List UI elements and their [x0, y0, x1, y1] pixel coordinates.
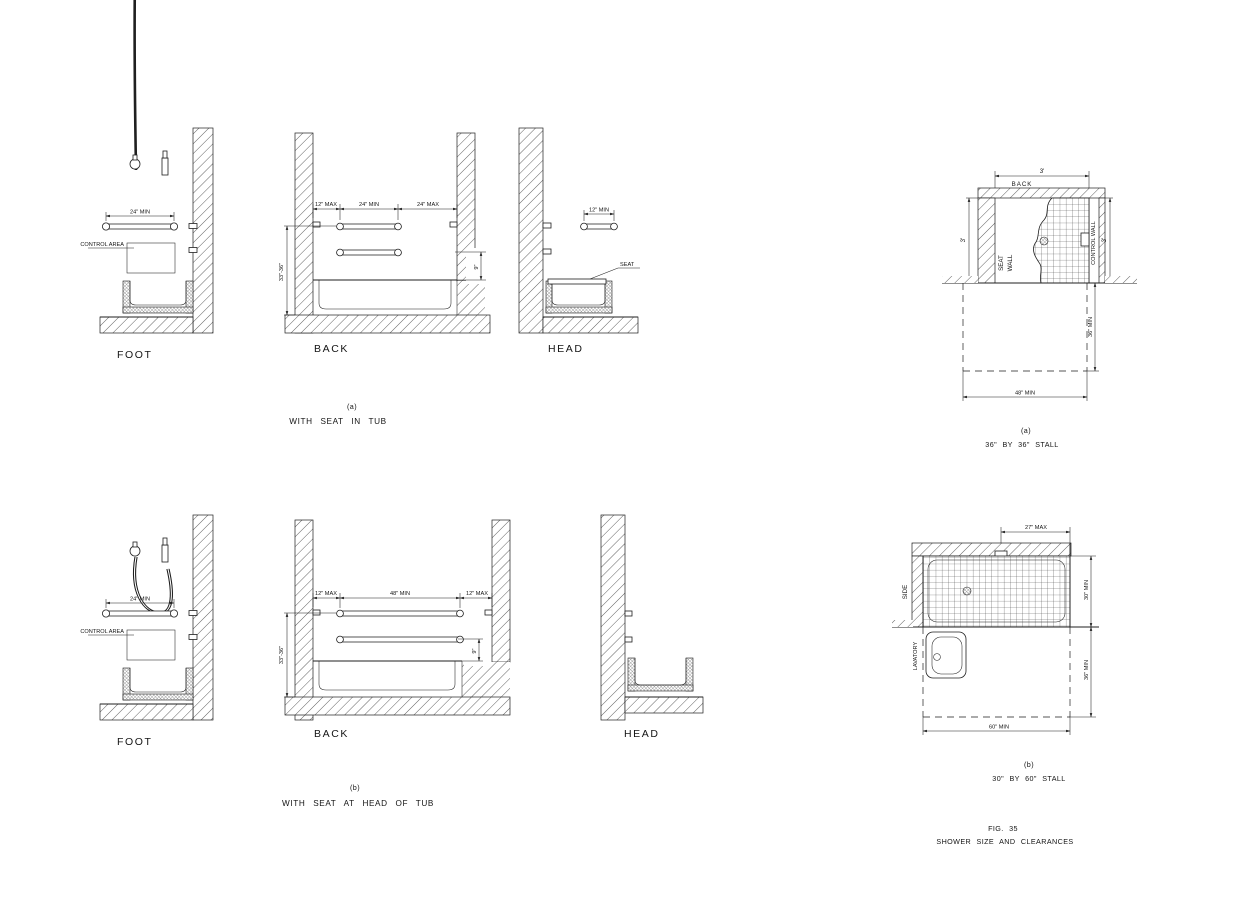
back-view-label: BACK — [314, 343, 349, 355]
dim-text: 48" MIN — [390, 591, 410, 597]
dim-text: 60" MIN — [989, 725, 1009, 731]
dim-text: 36" MIN — [1088, 317, 1094, 337]
head-view-label: HEAD — [548, 343, 584, 355]
grab-bar-section-mark — [189, 611, 197, 616]
tub-section — [123, 281, 193, 313]
dim-text: 24" MAX — [417, 202, 439, 208]
dimension-clear-length: 48" MIN — [963, 371, 1087, 401]
tub-elevation — [313, 661, 462, 697]
tub-details-b: 24" MIN CONTROL AREA FOOT — [80, 515, 703, 808]
shower-stall-a: 3' BACK SEAT WALL CONTROL WALL 3' 3' — [942, 168, 1137, 449]
dimension-head-bar: 12" MIN — [584, 208, 614, 222]
tub-section — [628, 658, 693, 691]
dimension-stall-left: 3' — [960, 198, 978, 283]
wall-below-rim — [457, 281, 485, 315]
caption-letter-stall-b: (b) — [1024, 760, 1034, 769]
dim-text: 48" MIN — [1015, 391, 1035, 397]
floor-hatch — [1105, 276, 1137, 283]
hand-shower-icon — [130, 0, 171, 226]
foot-view-b: 24" MIN CONTROL AREA FOOT — [80, 515, 213, 748]
grab-bar-section-mark — [625, 637, 632, 642]
grab-bar-upper — [337, 223, 402, 230]
head-view-label: HEAD — [624, 728, 660, 740]
dimension-back-top: 12" MAX 48" MIN 12" MAX — [313, 591, 492, 608]
shower-stall-b: 27" MAX SIDE LAVATORY 30" — [892, 525, 1099, 783]
control-area-label: CONTROL AREA — [80, 242, 124, 248]
floor-hatch — [942, 276, 978, 283]
grab-bar-section-mark — [189, 248, 197, 253]
back-view-a: 12" MAX 24" MIN 24" MAX 33"-36" 9" BACK — [279, 133, 492, 355]
wall-section — [492, 520, 510, 662]
back-wall — [912, 543, 1071, 556]
dim-text: 12" MAX — [466, 591, 488, 597]
seat-label: SEAT — [620, 262, 635, 268]
caption-letter-b: (b) — [350, 783, 360, 792]
grab-bar — [581, 223, 618, 230]
foot-view-label: FOOT — [117, 349, 153, 361]
dimension-back-top: 12" MAX 24" MIN 24" MAX — [313, 202, 457, 220]
wall-section — [193, 128, 213, 333]
control-area-label: CONTROL AREA — [80, 629, 124, 635]
wall-below-rim — [462, 662, 510, 697]
figure-canvas: 24" MIN CONTROL AREA FOOT — [0, 0, 1259, 900]
dim-text: 12" MAX — [315, 202, 337, 208]
dim-text: 9" — [472, 648, 478, 653]
floor-section — [100, 317, 193, 333]
back-view-b: 12" MAX 48" MIN 12" MAX 33"-36" 9" BACK — [279, 520, 510, 740]
dim-text: 24" MIN — [359, 202, 379, 208]
dimension-clear-depth: 36" MIN — [1070, 627, 1096, 717]
drain-icon — [963, 587, 971, 595]
dim-text: 9" — [474, 264, 480, 269]
wall-section — [601, 515, 625, 720]
floor-section — [543, 317, 638, 333]
caption-title-a: WITH SEAT IN TUB — [289, 417, 386, 426]
lavatory-sink — [926, 632, 966, 678]
grab-bar-upper — [337, 610, 464, 617]
back-view-label: BACK — [314, 728, 349, 740]
grab-bar-section-mark — [625, 611, 632, 616]
lavatory-label: LAVATORY — [913, 642, 919, 671]
caption-title-stall-a: 36" BY 36" STALL — [985, 440, 1058, 449]
dimension-foot-bar: 24" MIN — [106, 597, 174, 609]
tub-seat: SEAT — [548, 262, 640, 284]
dim-text: 3' — [960, 238, 967, 243]
grab-bar-lower — [337, 636, 464, 643]
dimension-stall-depth: 30" MIN — [1071, 556, 1096, 627]
dimension-clear-length: 60" MIN — [923, 717, 1070, 735]
dim-text: 12" MAX — [315, 591, 337, 597]
dim-text: 3' — [1040, 168, 1045, 175]
control-unit — [1081, 233, 1089, 246]
foot-view-a: 24" MIN CONTROL AREA FOOT — [80, 0, 213, 361]
control-area-callout: CONTROL AREA — [80, 242, 175, 273]
side-wall-label: SIDE — [902, 585, 909, 599]
seat-wall-label-line1: SEAT — [998, 255, 1005, 271]
dimension-foot-bar: 24" MIN — [106, 210, 174, 222]
grab-bar-section-mark — [313, 610, 320, 615]
clear-floor-space — [963, 283, 1087, 371]
head-view-a: SEAT 12" MIN HEAD — [519, 128, 640, 355]
side-wall — [912, 556, 923, 627]
dim-text: 30" MIN — [1084, 580, 1090, 600]
dim-text: 36" MIN — [1084, 660, 1090, 680]
dim-text: 27" MAX — [1025, 525, 1047, 531]
floor-section — [285, 697, 510, 715]
floor-section — [285, 315, 490, 333]
caption-title-b: WITH SEAT AT HEAD OF TUB — [282, 799, 434, 808]
dim-text: 33"-36" — [279, 263, 285, 281]
dimension-rim-gap: 9" — [458, 634, 490, 666]
tub-details-a: 24" MIN CONTROL AREA FOOT — [80, 0, 640, 426]
dim-text: 24" MIN — [130, 597, 150, 603]
foot-view-label: FOOT — [117, 736, 153, 748]
caption-title-stall-b: 30" BY 60" STALL — [992, 774, 1065, 783]
grab-bar-section-mark — [543, 249, 551, 254]
grab-bar — [102, 610, 177, 617]
seat-wall — [978, 198, 995, 283]
tub-section — [546, 281, 612, 313]
dimension-clear-depth: 36" MIN — [1087, 283, 1099, 371]
grab-bar-section-mark — [485, 610, 492, 615]
shower-pan-tiles — [923, 556, 1070, 627]
figure-caption: FIG. 35 SHOWER SIZE AND CLEARANCES — [936, 824, 1073, 846]
caption-letter-stall-a: (a) — [1021, 426, 1031, 435]
grab-bar-section-mark — [189, 224, 197, 229]
figure-number: FIG. 35 — [988, 824, 1018, 833]
floor-hatch — [892, 620, 913, 627]
grab-bar-section-mark — [189, 635, 197, 640]
wall-section — [295, 520, 313, 720]
back-wall — [978, 188, 1105, 198]
wall-section — [295, 133, 313, 333]
head-view-b: HEAD — [601, 515, 703, 740]
dim-text: 24" MIN — [130, 210, 150, 216]
back-wall-label: BACK — [1012, 181, 1033, 188]
caption-letter-a: (a) — [347, 402, 357, 411]
seat-wall-label-line2: WALL — [1007, 254, 1014, 271]
control-area-callout: CONTROL AREA — [80, 629, 175, 660]
grab-bar — [102, 223, 177, 230]
figure-title: SHOWER SIZE AND CLEARANCES — [936, 837, 1073, 846]
control-wall-label: CONTROL WALL — [1091, 221, 1097, 265]
floor-section — [625, 697, 703, 713]
dim-text: 33"-36" — [279, 646, 285, 664]
floor-section — [100, 704, 193, 720]
grab-bar-section-mark — [450, 222, 457, 227]
tub-section — [123, 668, 193, 700]
tub-elevation — [313, 280, 457, 315]
dim-text: 12" MIN — [589, 208, 609, 214]
wall-section — [193, 515, 213, 720]
dim-text: 3' — [1101, 238, 1108, 243]
grab-bar-lower — [337, 249, 402, 256]
wall-section — [519, 128, 543, 333]
grab-bar-section-mark — [543, 223, 551, 228]
drain-icon — [1040, 237, 1048, 245]
